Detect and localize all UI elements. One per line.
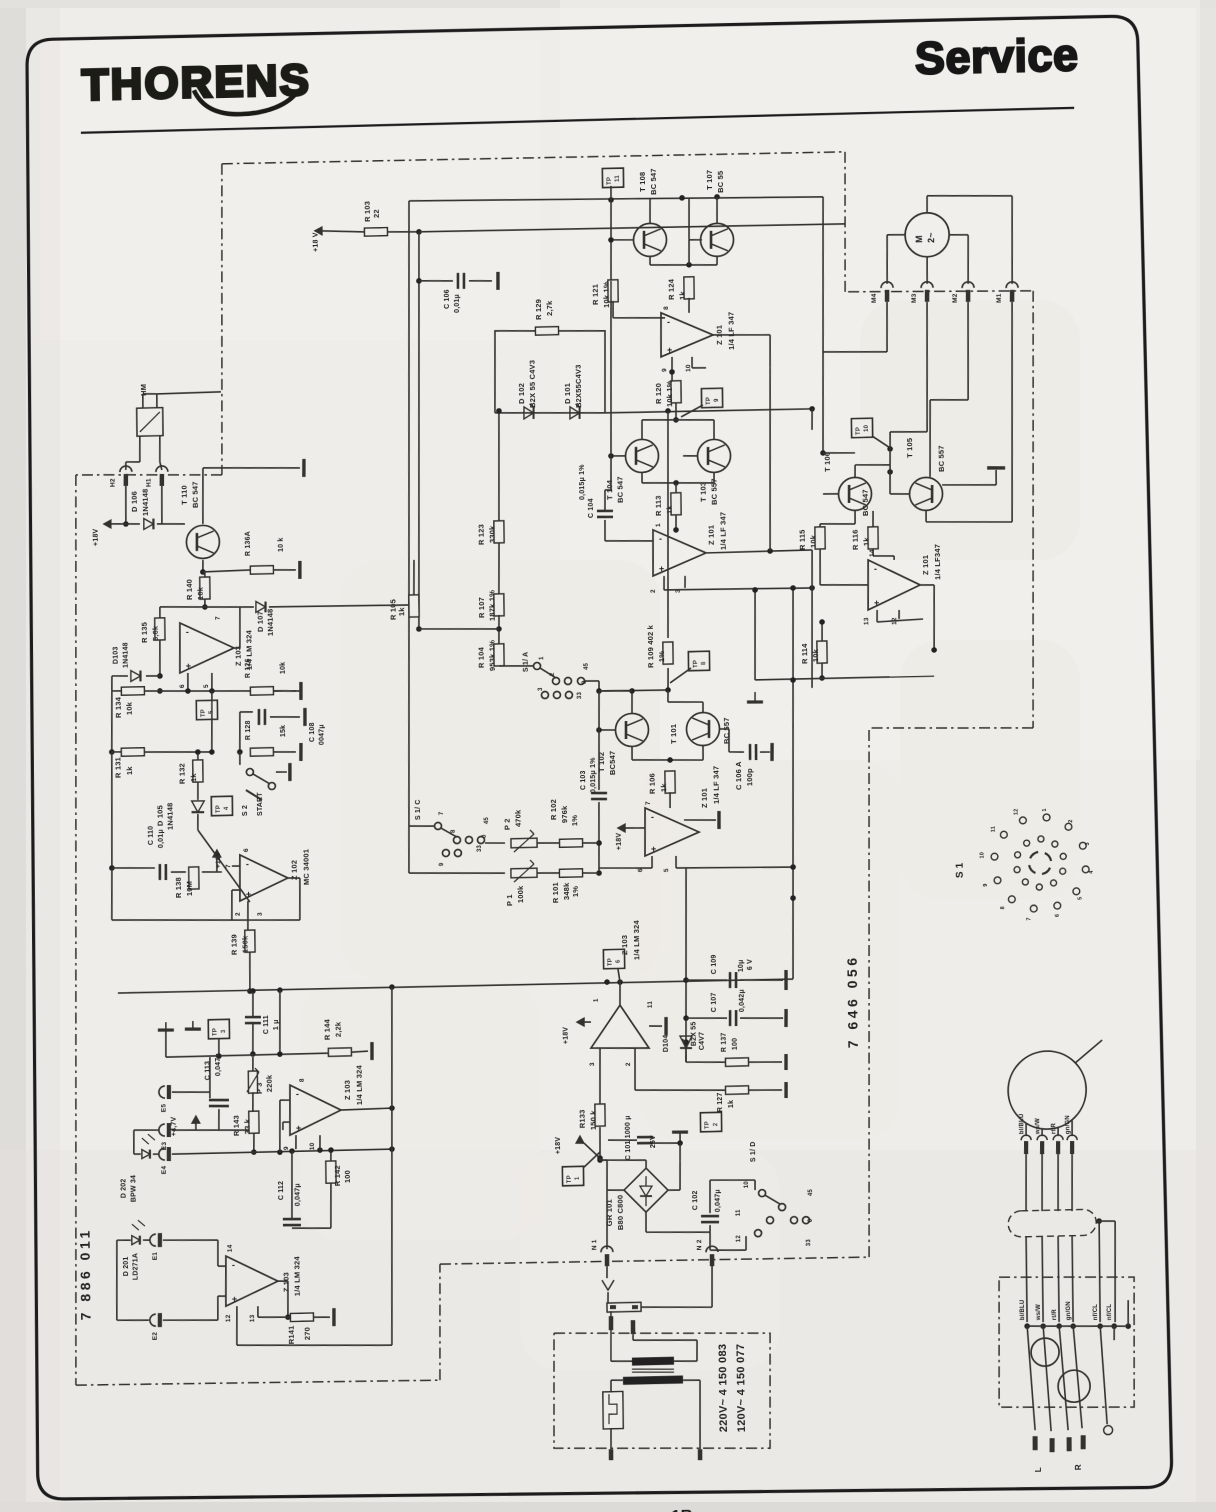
svg-text:BC 547: BC 547 xyxy=(191,481,200,508)
svg-text:1k: 1k xyxy=(728,1100,735,1108)
svg-text:1/4 LF 347: 1/4 LF 347 xyxy=(727,312,736,350)
svg-text:3: 3 xyxy=(538,687,544,691)
svg-text:12: 12 xyxy=(1013,808,1019,815)
svg-text:R 139: R 139 xyxy=(230,934,239,955)
svg-text:2: 2 xyxy=(650,589,657,593)
svg-text:10: 10 xyxy=(864,424,870,432)
svg-text:7: 7 xyxy=(1026,917,1032,920)
svg-text:10k: 10k xyxy=(280,662,287,674)
svg-text:C 113: C 113 xyxy=(205,1061,212,1080)
svg-text:rt/R: rt/R xyxy=(1051,1122,1057,1134)
svg-text:BC 547: BC 547 xyxy=(616,476,625,503)
svg-text:120V~ 4 150 077: 120V~ 4 150 077 xyxy=(735,1344,748,1433)
svg-text:R 116: R 116 xyxy=(851,529,860,550)
svg-text:5: 5 xyxy=(203,684,210,688)
svg-text:8: 8 xyxy=(451,829,457,833)
svg-text:D104: D104 xyxy=(663,1035,670,1053)
svg-text:12: 12 xyxy=(225,1314,232,1322)
svg-text:C 111: C 111 xyxy=(263,1015,270,1034)
svg-text:13: 13 xyxy=(249,1314,256,1322)
svg-text:6: 6 xyxy=(179,684,186,688)
svg-text:T 102: T 102 xyxy=(597,752,606,772)
svg-text:+: + xyxy=(246,889,252,899)
svg-text:R 138: R 138 xyxy=(174,877,183,898)
svg-text:0,015μ 1%: 0,015μ 1% xyxy=(579,464,586,500)
svg-text:GR 101: GR 101 xyxy=(605,1199,614,1226)
svg-text:100p: 100p xyxy=(745,768,754,786)
svg-text:270: 270 xyxy=(303,1327,312,1340)
svg-text:C 110: C 110 xyxy=(148,826,155,845)
svg-text:1/4 LF 347: 1/4 LF 347 xyxy=(719,512,728,550)
svg-text:T 108: T 108 xyxy=(638,172,647,192)
svg-text:6 V: 6 V xyxy=(747,959,754,970)
svg-text:187k 1%: 187k 1% xyxy=(488,590,497,621)
svg-text:33: 33 xyxy=(577,691,583,699)
svg-text:10k: 10k xyxy=(809,534,818,548)
svg-text:100: 100 xyxy=(732,1038,739,1050)
svg-text:+18V: +18V xyxy=(215,851,222,868)
svg-text:10k: 10k xyxy=(811,648,820,662)
svg-text:+: + xyxy=(186,661,192,671)
svg-text:+: + xyxy=(296,1123,302,1133)
svg-text:+18V: +18V xyxy=(93,528,100,546)
svg-text:gn/GN: gn/GN xyxy=(1065,1115,1071,1134)
svg-text:E2: E2 xyxy=(152,1332,159,1341)
svg-text:0: 0 xyxy=(808,1218,814,1222)
svg-text:33: 33 xyxy=(806,1239,812,1247)
svg-text:P 2: P 2 xyxy=(503,818,512,830)
svg-text:9: 9 xyxy=(283,1146,290,1150)
svg-text:1k: 1k xyxy=(397,607,406,617)
svg-text:1N4148: 1N4148 xyxy=(141,488,150,516)
svg-text:+18V: +18V xyxy=(563,1027,570,1045)
svg-text:N 2: N 2 xyxy=(696,1239,703,1250)
svg-text:7 646 056: 7 646 056 xyxy=(844,954,861,1048)
svg-text:0,047μ: 0,047μ xyxy=(215,1053,222,1076)
svg-text:C 106: C 106 xyxy=(444,289,451,309)
svg-text:2,2k: 2,2k xyxy=(334,1021,343,1037)
svg-text:H1: H1 xyxy=(146,478,153,487)
svg-text:10: 10 xyxy=(744,1181,750,1189)
svg-text:R 136A: R 136A xyxy=(245,531,252,556)
svg-text:C 106 A: C 106 A xyxy=(734,761,743,790)
svg-text:M3: M3 xyxy=(911,293,918,303)
svg-text:9: 9 xyxy=(983,883,989,886)
svg-text:2: 2 xyxy=(550,672,556,676)
svg-text:25V: 25V xyxy=(650,1135,657,1148)
svg-text:TP: TP xyxy=(216,805,222,813)
svg-text:D 202: D 202 xyxy=(121,1178,128,1198)
svg-text:10: 10 xyxy=(980,852,986,859)
svg-text:1k: 1k xyxy=(665,505,674,515)
svg-text:R 140: R 140 xyxy=(185,579,194,600)
svg-text:R 128: R 128 xyxy=(245,720,252,740)
svg-text:TP: TP xyxy=(706,397,712,405)
svg-text:13: 13 xyxy=(863,617,870,625)
svg-text:Z 103: Z 103 xyxy=(234,646,243,666)
svg-text:TP: TP xyxy=(856,427,862,435)
svg-text:10 k: 10 k xyxy=(278,537,285,552)
svg-text:1k: 1k xyxy=(678,290,687,300)
svg-text:M4: M4 xyxy=(871,293,878,303)
svg-text:1N4148: 1N4148 xyxy=(166,802,175,830)
svg-text:R 113: R 113 xyxy=(654,495,663,516)
svg-text:1 μ: 1 μ xyxy=(273,1019,280,1030)
svg-text:C 102: C 102 xyxy=(692,1190,699,1210)
svg-text:R 114: R 114 xyxy=(800,643,809,664)
svg-text:R 121: R 121 xyxy=(591,284,600,305)
svg-text:R 137: R 137 xyxy=(721,1032,728,1052)
svg-text:100: 100 xyxy=(343,1170,352,1183)
svg-text:45: 45 xyxy=(484,816,490,824)
svg-text:D 106: D 106 xyxy=(130,491,139,512)
svg-text:C 107: C 107 xyxy=(711,992,718,1012)
svg-text:R 134: R 134 xyxy=(114,696,123,718)
svg-text:11: 11 xyxy=(647,1001,654,1009)
svg-text:2: 2 xyxy=(235,912,242,916)
svg-text:Z 101: Z 101 xyxy=(707,525,716,545)
svg-text:C 108: C 108 xyxy=(309,722,316,742)
svg-text:TP: TP xyxy=(567,1175,573,1183)
svg-text:15k: 15k xyxy=(280,725,287,737)
svg-text:R141: R141 xyxy=(287,1325,296,1344)
svg-text:0,047μ: 0,047μ xyxy=(295,1183,302,1206)
svg-text:+: + xyxy=(667,345,673,355)
svg-text:B2X 55: B2X 55 xyxy=(691,1021,698,1046)
svg-text:R 103: R 103 xyxy=(363,201,372,222)
svg-text:R 120: R 120 xyxy=(654,383,663,404)
svg-text:bl/BLU: bl/BLU xyxy=(1020,1300,1026,1321)
svg-text:R 115: R 115 xyxy=(798,529,807,550)
svg-text:Z 103: Z 103 xyxy=(620,935,629,955)
svg-text:S 1: S 1 xyxy=(955,862,966,878)
svg-text:E5: E5 xyxy=(161,1104,168,1113)
svg-text:BC 547: BC 547 xyxy=(649,168,658,195)
svg-text:P 3: P 3 xyxy=(255,1082,264,1094)
svg-text:-: - xyxy=(296,1089,299,1099)
svg-text:9: 9 xyxy=(439,862,445,866)
svg-text:+18 V: +18 V xyxy=(313,232,320,252)
svg-text:Z 103: Z 103 xyxy=(282,1272,291,1292)
svg-text:R 129: R 129 xyxy=(534,299,543,320)
svg-text:B80 C800: B80 C800 xyxy=(616,1195,625,1231)
svg-text:R 104: R 104 xyxy=(477,646,486,668)
svg-text:7: 7 xyxy=(645,801,652,805)
svg-text:Z 101: Z 101 xyxy=(921,555,930,575)
svg-text:R 143: R 143 xyxy=(232,1115,241,1136)
svg-text:E4: E4 xyxy=(161,1166,168,1175)
svg-text:1: 1 xyxy=(593,998,600,1002)
svg-text:C 112: C 112 xyxy=(278,1181,285,1200)
svg-text:TP: TP xyxy=(705,1121,711,1129)
svg-text:7 886 011: 7 886 011 xyxy=(77,1227,94,1320)
svg-text:6: 6 xyxy=(243,848,250,852)
svg-text:0047μ: 0047μ xyxy=(319,724,326,745)
svg-text:953k 1%: 953k 1% xyxy=(488,640,497,671)
svg-text:10k: 10k xyxy=(125,701,134,715)
svg-text:BC 547: BC 547 xyxy=(861,489,870,516)
svg-text:220k: 220k xyxy=(265,1074,274,1092)
svg-text:R 124: R 124 xyxy=(667,278,676,300)
svg-text:5,6k: 5,6k xyxy=(151,625,160,641)
svg-text:R 107: R 107 xyxy=(477,597,486,618)
svg-text:3: 3 xyxy=(221,1029,227,1033)
svg-text:7: 7 xyxy=(215,616,222,620)
svg-text:START: START xyxy=(257,792,264,816)
svg-text:10k: 10k xyxy=(196,586,205,600)
svg-text:T 101: T 101 xyxy=(669,724,678,744)
svg-text:1N4148: 1N4148 xyxy=(266,608,275,636)
svg-text:2,7k: 2,7k xyxy=(545,300,554,316)
svg-text:+18V: +18V xyxy=(555,1137,562,1155)
svg-text:8: 8 xyxy=(701,661,707,665)
svg-text:bl/BLU: bl/BLU xyxy=(1019,1114,1025,1135)
svg-text:1: 1 xyxy=(575,1176,581,1180)
svg-text:S 1/ C: S 1/ C xyxy=(415,799,422,820)
svg-text:3: 3 xyxy=(1085,842,1091,845)
svg-text:1/4 LM 324: 1/4 LM 324 xyxy=(354,1064,363,1105)
svg-text:45: 45 xyxy=(584,662,590,670)
svg-text:1%: 1% xyxy=(657,651,666,663)
svg-text:D 107: D 107 xyxy=(256,611,265,632)
svg-text:3: 3 xyxy=(257,912,264,916)
svg-text:D 105: D 105 xyxy=(156,805,165,826)
svg-text:TP: TP xyxy=(608,958,614,966)
svg-text:0,047μ: 0,047μ xyxy=(715,1189,722,1212)
svg-text:S 1/ A: S 1/ A xyxy=(523,652,530,673)
svg-text:nf/CL: nf/CL xyxy=(1107,1304,1113,1321)
svg-text:+: + xyxy=(659,564,665,574)
svg-text:7: 7 xyxy=(439,811,445,815)
svg-text:R133: R133 xyxy=(578,1109,587,1128)
svg-text:33: 33 xyxy=(477,844,483,852)
svg-text:0,01μ: 0,01μ xyxy=(454,294,461,313)
svg-text:R 132: R 132 xyxy=(178,763,187,784)
svg-text:D 101: D 101 xyxy=(563,383,572,404)
svg-text:BC 55: BC 55 xyxy=(716,171,725,193)
svg-text:gn/GN: gn/GN xyxy=(1066,1301,1072,1320)
svg-text:R 135: R 135 xyxy=(140,622,149,643)
svg-text:1: 1 xyxy=(539,656,545,660)
svg-text:B2X 55 C4V3: B2X 55 C4V3 xyxy=(527,360,537,408)
svg-text:C 104: C 104 xyxy=(588,498,595,518)
svg-text:T 105: T 105 xyxy=(905,438,914,458)
svg-text:TP: TP xyxy=(201,709,207,717)
svg-text:C 101 1000 μ: C 101 1000 μ xyxy=(625,1115,633,1160)
svg-text:348k: 348k xyxy=(562,882,571,900)
svg-text:THORENS: THORENS xyxy=(81,56,311,110)
svg-text:1N4148: 1N4148 xyxy=(123,642,130,668)
svg-text:1/4 LM 324: 1/4 LM 324 xyxy=(632,919,641,960)
svg-text:10k 1%: 10k 1% xyxy=(665,380,674,407)
svg-text:R 101: R 101 xyxy=(551,882,560,903)
svg-text:S 2: S 2 xyxy=(242,805,249,816)
svg-text:TP: TP xyxy=(607,177,613,185)
svg-text:6: 6 xyxy=(1055,914,1061,917)
svg-text:R 131: R 131 xyxy=(114,757,123,778)
svg-text:R 109 402 k: R 109 402 k xyxy=(646,624,656,668)
svg-text:1/4 LM 324: 1/4 LM 324 xyxy=(292,1256,301,1297)
svg-text:B2X55C4V3: B2X55C4V3 xyxy=(573,364,583,408)
svg-text:D 102: D 102 xyxy=(517,383,526,404)
svg-text:R 127: R 127 xyxy=(717,1092,724,1112)
svg-text:4: 4 xyxy=(224,806,230,810)
svg-text:11: 11 xyxy=(736,1209,742,1216)
svg-text:-: - xyxy=(651,812,654,822)
svg-text:R 106: R 106 xyxy=(648,773,657,794)
svg-text:Z 103: Z 103 xyxy=(343,1080,352,1100)
svg-text:1: 1 xyxy=(1042,808,1048,811)
svg-text:12: 12 xyxy=(736,1235,742,1243)
svg-text:5: 5 xyxy=(1077,897,1083,900)
svg-text:22: 22 xyxy=(372,209,381,218)
svg-text:T 110: T 110 xyxy=(180,485,189,505)
svg-text:9: 9 xyxy=(661,368,668,372)
svg-text:0,042μ: 0,042μ xyxy=(739,989,746,1012)
svg-text:150k: 150k xyxy=(241,935,250,953)
svg-text:8: 8 xyxy=(663,306,670,310)
svg-text:nf/CL: nf/CL xyxy=(1093,1304,1099,1321)
svg-text:M: M xyxy=(914,235,924,243)
svg-text:T 107: T 107 xyxy=(705,170,714,190)
svg-text:1k: 1k xyxy=(189,773,198,783)
svg-text:1%: 1% xyxy=(570,815,579,827)
svg-text:1B: 1B xyxy=(671,1506,693,1512)
svg-text:P 1: P 1 xyxy=(505,894,514,906)
svg-text:TP: TP xyxy=(213,1028,219,1036)
svg-text:+4,7V: +4,7V xyxy=(171,1116,178,1136)
svg-text:Service: Service xyxy=(915,29,1079,84)
svg-text:LD271A: LD271A xyxy=(133,1253,140,1280)
svg-text:BC547: BC547 xyxy=(608,751,617,776)
svg-text:150 k: 150 k xyxy=(589,1110,598,1131)
svg-text:D103: D103 xyxy=(113,646,120,664)
svg-text:MC 34001: MC 34001 xyxy=(302,849,311,885)
svg-text:BPW 34: BPW 34 xyxy=(130,1175,137,1202)
svg-text:6: 6 xyxy=(616,959,622,963)
svg-text:Z 101: Z 101 xyxy=(700,788,709,808)
svg-text:M1: M1 xyxy=(996,293,1003,303)
svg-text:100k: 100k xyxy=(516,885,525,903)
svg-text:8: 8 xyxy=(1000,906,1006,909)
svg-text:11: 11 xyxy=(991,826,997,832)
svg-text:D 201: D 201 xyxy=(123,1256,130,1276)
svg-text:-: - xyxy=(659,534,662,544)
svg-text:H2: H2 xyxy=(110,478,117,487)
svg-text:ws/W: ws/W xyxy=(1035,1118,1041,1135)
svg-text:S 1/ D: S 1/ D xyxy=(750,1141,757,1162)
svg-text:+: + xyxy=(232,1294,238,1304)
svg-text:1%: 1% xyxy=(571,886,580,898)
svg-text:8: 8 xyxy=(299,1078,306,1082)
svg-text:BC 557: BC 557 xyxy=(937,445,946,472)
svg-text:33 k: 33 k xyxy=(243,1118,252,1134)
svg-text:1: 1 xyxy=(655,523,662,527)
svg-text:M2: M2 xyxy=(952,293,959,303)
svg-text:976k: 976k xyxy=(560,805,569,823)
svg-text:1/4 LF 347: 1/4 LF 347 xyxy=(712,766,721,804)
svg-text:Z 102: Z 102 xyxy=(290,860,299,880)
svg-text:C 103: C 103 xyxy=(580,770,587,790)
svg-text:470k: 470k xyxy=(514,809,523,827)
svg-text:TP: TP xyxy=(693,660,699,668)
svg-text:45: 45 xyxy=(808,1189,814,1197)
svg-text:5: 5 xyxy=(663,868,670,872)
svg-text:C 109: C 109 xyxy=(711,954,718,974)
svg-text:-: - xyxy=(667,317,670,327)
svg-text:2: 2 xyxy=(1068,819,1074,822)
svg-text:2: 2 xyxy=(713,1122,719,1126)
svg-text:+: + xyxy=(874,598,880,608)
svg-text:330k: 330k xyxy=(488,525,497,543)
svg-text:10μ: 10μ xyxy=(738,959,745,972)
svg-text:1k: 1k xyxy=(659,783,668,793)
svg-text:9: 9 xyxy=(714,398,720,402)
svg-text:E1: E1 xyxy=(152,1252,159,1261)
svg-text:10: 10 xyxy=(309,1142,316,1150)
svg-text:C4V7: C4V7 xyxy=(699,1032,706,1050)
svg-text:R 126: R 126 xyxy=(245,658,252,678)
svg-text:0,01μ: 0,01μ xyxy=(158,829,165,848)
svg-text:ws/W: ws/W xyxy=(1036,1304,1042,1321)
svg-text:11: 11 xyxy=(615,175,621,182)
svg-text:R 144: R 144 xyxy=(323,1018,332,1040)
svg-text:7: 7 xyxy=(225,864,232,868)
svg-text:T 103: T 103 xyxy=(699,482,708,502)
svg-text:10M: 10M xyxy=(185,881,194,896)
svg-text:1k: 1k xyxy=(862,537,871,547)
svg-text:R 123: R 123 xyxy=(477,524,486,545)
svg-text:-: - xyxy=(232,1260,235,1270)
svg-text:rt/R: rt/R xyxy=(1052,1309,1058,1321)
svg-text:1/4 LF347: 1/4 LF347 xyxy=(933,544,942,580)
svg-text:+18V: +18V xyxy=(616,833,623,851)
svg-text:-: - xyxy=(186,627,189,637)
svg-text:+: + xyxy=(651,844,657,854)
svg-text:0: 0 xyxy=(482,834,488,838)
svg-text:220V~ 4 150 083: 220V~ 4 150 083 xyxy=(717,1344,730,1433)
svg-text:R 142: R 142 xyxy=(333,1165,342,1186)
svg-text:14: 14 xyxy=(869,549,876,557)
svg-text:2: 2 xyxy=(625,1062,632,1066)
svg-text:1k: 1k xyxy=(125,766,134,776)
svg-text:10: 10 xyxy=(685,364,692,372)
svg-text:0,015μ 1%: 0,015μ 1% xyxy=(590,757,597,793)
svg-text:2~: 2~ xyxy=(926,232,936,243)
svg-text:-: - xyxy=(874,564,877,574)
svg-text:R 102: R 102 xyxy=(549,799,558,820)
svg-text:R: R xyxy=(1074,1464,1083,1470)
svg-text:N 1: N 1 xyxy=(591,1239,598,1250)
svg-text:L: L xyxy=(1034,1467,1043,1472)
svg-text:-: - xyxy=(246,859,249,869)
svg-text:14: 14 xyxy=(227,1244,234,1252)
svg-text:10k 1%: 10k 1% xyxy=(602,281,611,308)
svg-text:3: 3 xyxy=(589,1062,596,1066)
